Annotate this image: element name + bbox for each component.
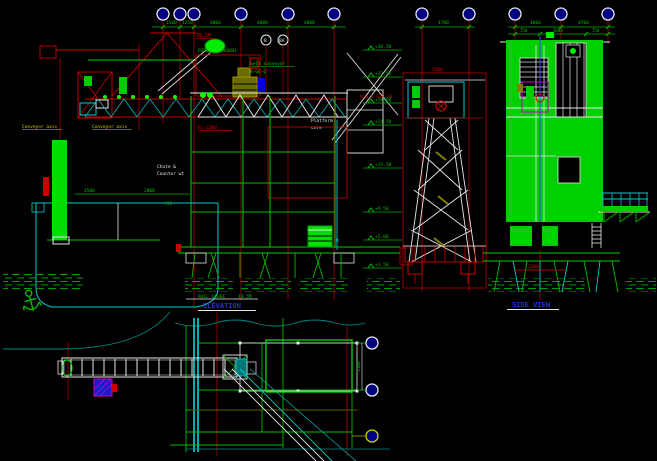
window-opening	[558, 157, 580, 183]
girder-note: B1 CONV.	[198, 125, 220, 131]
red-note: 39.5M	[196, 33, 211, 39]
machinery-box	[233, 77, 257, 97]
plan-white-frame	[240, 343, 357, 391]
cad-svg[interactable]: 1500 1250 4000 4000 4000 39.5M 4700 4600…	[0, 0, 657, 461]
elevation-marker: +24.50	[363, 119, 402, 125]
plan-blue-box	[94, 379, 117, 396]
equipment-mark: M	[336, 238, 339, 244]
belt-note-line2: B-GE-Q	[250, 69, 267, 75]
front-view-title: ELEVATION	[198, 302, 256, 311]
pulley-block	[205, 39, 225, 53]
chute-note: Chute & Counter wt	[157, 164, 184, 177]
green-panel	[119, 77, 127, 94]
svg-text:+38.50: +38.50	[375, 44, 392, 50]
anchor-icon	[19, 288, 42, 313]
access-platform	[598, 193, 650, 222]
basin-dim: H11	[164, 201, 172, 207]
grid-bubble	[366, 430, 378, 442]
elevation-marker: +5.00	[363, 234, 402, 240]
plan-dim: 3100	[356, 361, 362, 372]
grid-bubbles	[157, 8, 614, 20]
dimension-row-main: 1500 1250 4000 4000 4000 39.5M	[152, 20, 346, 39]
grid-bubble	[282, 8, 294, 20]
boom-truss: Platform core B1 CONV.	[85, 90, 383, 198]
svg-text:+24.50: +24.50	[375, 119, 392, 125]
dim-text: 4600	[530, 20, 541, 26]
grid-bubble	[602, 8, 614, 20]
plan-boom	[58, 355, 256, 379]
callout-label: B	[264, 38, 267, 44]
front-title: ELEVATION	[203, 302, 241, 310]
grid-bubble	[366, 384, 378, 396]
dim-text: 4700	[438, 20, 449, 26]
deck-gauge-dim: RAIL GAUGE 10.5M	[186, 294, 258, 300]
tower-base	[405, 246, 483, 262]
counterweight-tower	[78, 72, 127, 118]
grid-bubble	[328, 8, 340, 20]
chute-note-line2: Counter wt	[157, 171, 184, 177]
elevation-marker: +38.50	[363, 44, 402, 50]
dim-text: 1250	[182, 20, 193, 26]
dim-text: 4000	[210, 20, 221, 26]
platform-note-line1: Platform	[311, 118, 333, 124]
grid-bubble	[509, 8, 521, 20]
chute-note-line1: Chute &	[157, 164, 176, 170]
elevation-marker: +9.50	[363, 206, 402, 212]
dim-text: 4700	[578, 20, 589, 26]
tower-dim: 2500	[432, 67, 443, 73]
conveyor-axis-label-left: Conveyor axis	[22, 124, 58, 130]
gauge-value: 10.5M	[238, 294, 252, 300]
grid-bubble	[416, 8, 428, 20]
dim-text: 4000	[257, 20, 268, 26]
basin-dim: 2000	[144, 188, 155, 194]
svg-text:+33.50: +33.50	[375, 71, 392, 77]
grid-bubble	[235, 8, 247, 20]
elevation-markers: +38.50 +33.50 +28.50 +24.50 +15.50 +9.50…	[360, 44, 402, 268]
elevation-marker: +15.50	[363, 162, 402, 168]
selection-grips	[239, 342, 359, 393]
dim-text: 3000	[553, 28, 563, 33]
belt-note-line1: belt conveyor	[250, 61, 286, 67]
fender	[176, 244, 181, 252]
basin-dim: 4500	[84, 188, 95, 194]
svg-text:+15.50: +15.50	[375, 162, 392, 168]
elevation-marker: +33.50	[363, 71, 402, 77]
plan-diagonal-gallery	[224, 369, 356, 461]
loading-spout	[43, 140, 69, 244]
svg-text:+1.50: +1.50	[375, 262, 389, 268]
cad-drawing-canvas[interactable]: 1500 1250 4000 4000 4000 39.5M 4700 4600…	[0, 0, 657, 461]
grid-bubble	[366, 337, 378, 349]
side-view-title: SIDE VIEW	[507, 301, 559, 310]
spout-column	[52, 140, 67, 240]
side-pile-dim: 2500	[528, 264, 539, 270]
grid-bubble	[555, 8, 567, 20]
hwl-note: H.W.L +28.50	[360, 94, 393, 100]
front-piles	[192, 253, 341, 278]
shore-line	[3, 312, 170, 349]
plan-building-outline	[266, 340, 352, 392]
dim-text: 750	[592, 28, 600, 33]
dim-text: 4000	[304, 20, 315, 26]
dim-text: 750	[520, 28, 528, 33]
elevation-marker: +1.50	[363, 262, 402, 268]
svg-text:+9.50: +9.50	[375, 206, 389, 212]
plan-view: 3100	[3, 312, 390, 461]
dim-text: 1500	[166, 20, 177, 26]
side-title: SIDE VIEW	[512, 301, 551, 309]
trestle-tower-view: 2500	[400, 67, 486, 288]
gauge-label: RAIL GAUGE	[198, 294, 225, 300]
tower-legs	[409, 118, 476, 262]
grid-bubble	[174, 8, 186, 20]
callout-label: BA	[279, 38, 285, 44]
grid-bubble	[463, 8, 475, 20]
svg-text:+5.00: +5.00	[375, 234, 389, 240]
conveyor-axis-label-right: Conveyor axis	[92, 124, 128, 130]
conveyor-axis-labels: Conveyor axis Conveyor axis	[22, 124, 132, 130]
side-elevation-view: 2500 SIDE VIEW	[483, 32, 650, 310]
blue-unit	[258, 78, 265, 92]
grid-bubble	[157, 8, 169, 20]
grid-bubble	[188, 8, 200, 20]
